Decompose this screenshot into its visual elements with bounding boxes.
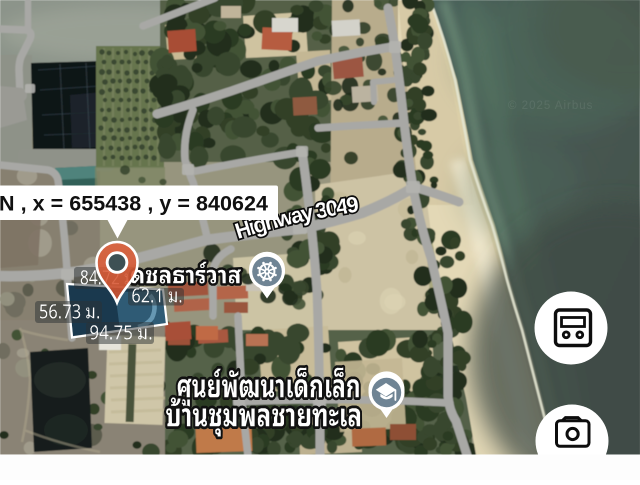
svg-text:N , x = 655438 , y = 840624: N , x = 655438 , y = 840624	[0, 192, 268, 216]
svg-text:© 2025 Airbus: © 2025 Airbus	[508, 100, 593, 112]
